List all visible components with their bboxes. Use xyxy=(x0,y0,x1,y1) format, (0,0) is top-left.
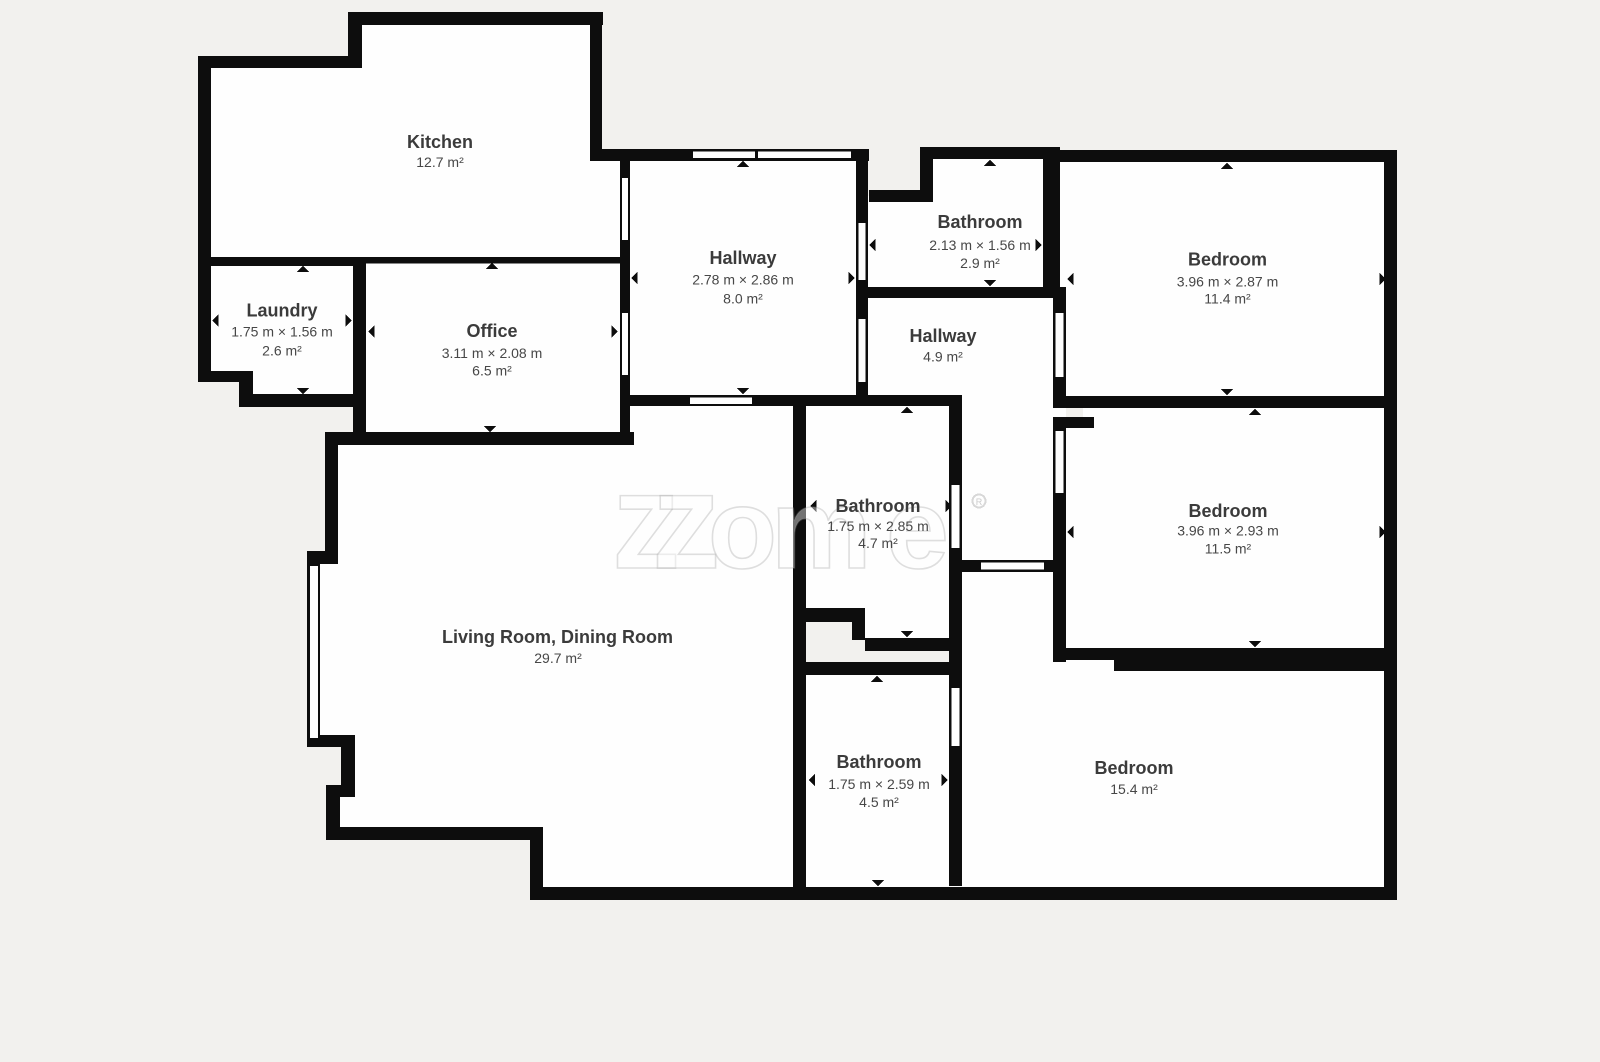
svg-text:3.11 m × 2.08 m: 3.11 m × 2.08 m xyxy=(442,345,543,361)
svg-text:4.9 m²: 4.9 m² xyxy=(923,349,963,365)
svg-text:Bedroom: Bedroom xyxy=(1188,250,1267,270)
svg-text:Bedroom: Bedroom xyxy=(1188,501,1267,521)
svg-text:o: o xyxy=(708,466,777,592)
svg-text:4.7 m²: 4.7 m² xyxy=(858,535,898,551)
svg-text:1.75 m × 2.59 m: 1.75 m × 2.59 m xyxy=(828,776,930,792)
svg-text:4.5 m²: 4.5 m² xyxy=(859,794,899,810)
svg-text:2.6 m²: 2.6 m² xyxy=(262,343,302,359)
svg-text:11.5 m²: 11.5 m² xyxy=(1205,541,1252,557)
svg-text:2.13 m × 1.56 m: 2.13 m × 1.56 m xyxy=(929,237,1031,253)
svg-text:Hallway: Hallway xyxy=(709,248,776,268)
svg-text:Living Room, Dining Room: Living Room, Dining Room xyxy=(442,627,673,647)
svg-text:3.96 m × 2.87 m: 3.96 m × 2.87 m xyxy=(1177,274,1279,290)
svg-text:R: R xyxy=(976,497,983,507)
svg-text:Laundry: Laundry xyxy=(246,301,317,321)
svg-text:1.75 m × 1.56 m: 1.75 m × 1.56 m xyxy=(231,324,333,340)
svg-text:2.78 m × 2.86 m: 2.78 m × 2.86 m xyxy=(692,272,794,288)
svg-text:Office: Office xyxy=(466,321,517,341)
svg-text:1.75 m × 2.85 m: 1.75 m × 2.85 m xyxy=(827,518,929,534)
svg-text:Bathroom: Bathroom xyxy=(938,212,1023,232)
svg-text:Bathroom: Bathroom xyxy=(836,496,921,516)
svg-text:Kitchen: Kitchen xyxy=(407,132,473,152)
svg-text:11.4 m²: 11.4 m² xyxy=(1204,291,1251,307)
svg-text:2.9 m²: 2.9 m² xyxy=(960,255,1000,271)
svg-text:12.7 m²: 12.7 m² xyxy=(416,154,464,170)
svg-text:29.7 m²: 29.7 m² xyxy=(534,650,582,666)
svg-text:8.0 m²: 8.0 m² xyxy=(723,291,763,307)
svg-text:Bedroom: Bedroom xyxy=(1094,758,1173,778)
svg-text:Hallway: Hallway xyxy=(909,326,976,346)
svg-text:6.5 m²: 6.5 m² xyxy=(472,363,512,379)
svg-text:15.4 m²: 15.4 m² xyxy=(1110,781,1158,797)
svg-text:Bathroom: Bathroom xyxy=(837,752,922,772)
svg-text:3.96 m × 2.93 m: 3.96 m × 2.93 m xyxy=(1177,522,1279,538)
